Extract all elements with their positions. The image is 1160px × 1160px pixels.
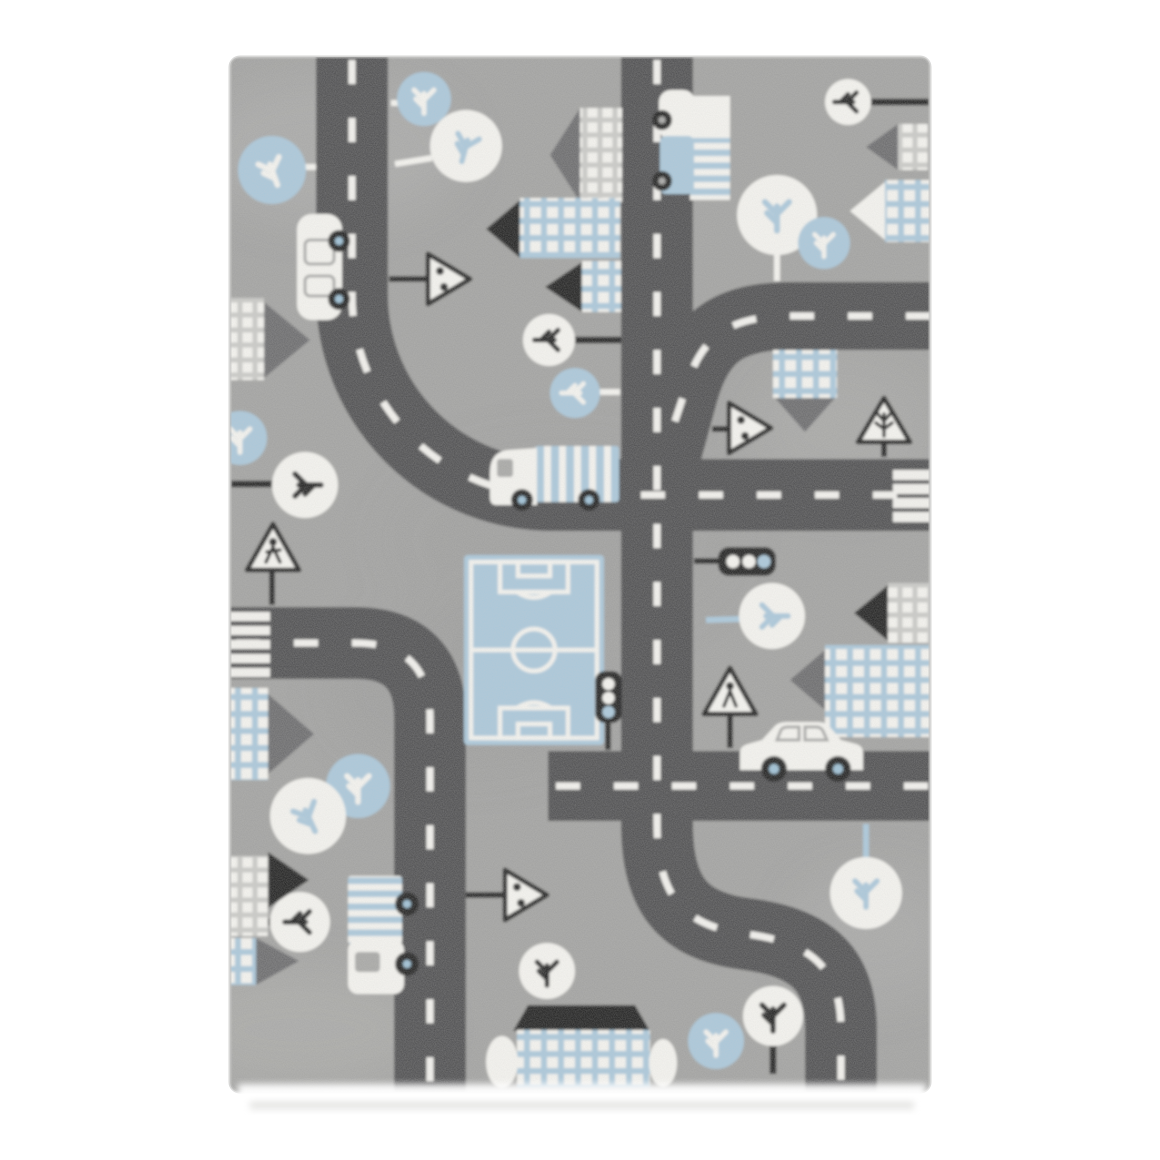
- play-rug-photo: [0, 0, 1160, 1160]
- rug-texture: [230, 57, 930, 1092]
- rug-fringe: [238, 1084, 926, 1100]
- product-photo: [0, 0, 1160, 1160]
